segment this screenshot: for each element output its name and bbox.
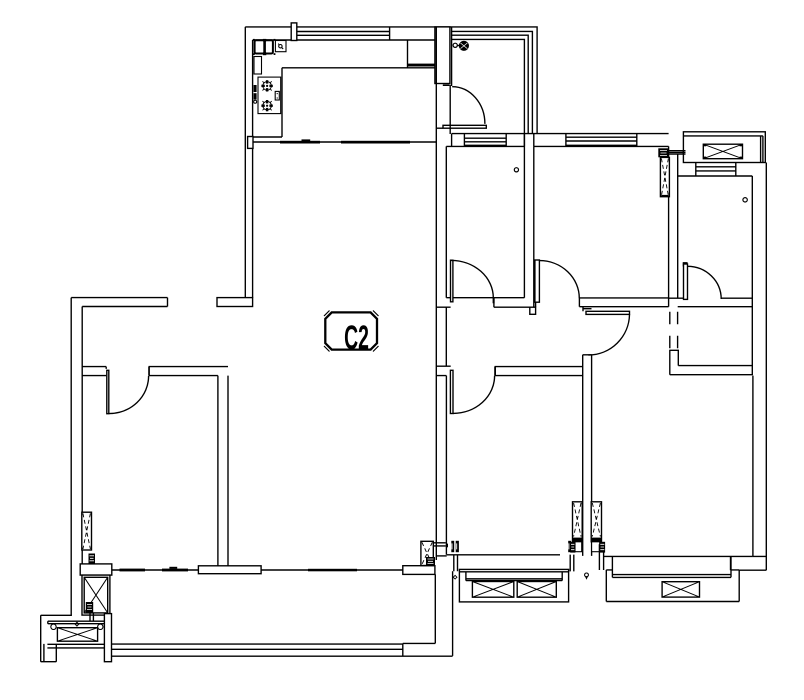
svg-text:C2: C2 [344, 318, 369, 356]
